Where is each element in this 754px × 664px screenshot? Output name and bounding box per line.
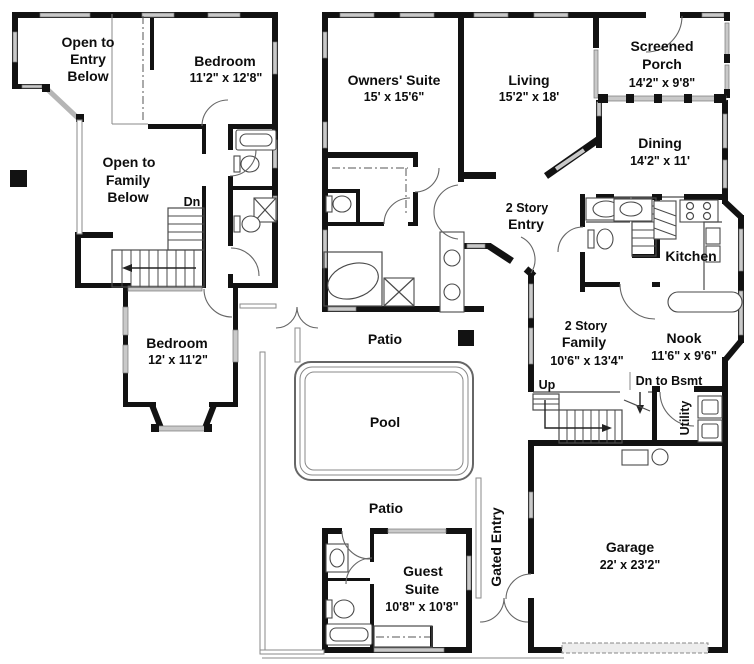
room-label-bedroom-lower: Bedroom [146,335,207,351]
washer-icon [698,396,722,418]
main-floor: Owners' Suite 15' x 15'6" Living 15'2" x… [240,12,744,658]
bathtub-icon [323,257,383,305]
room-label-bedroom-upper: Bedroom [194,53,255,69]
room-dims-family: 10'6" x 13'4" [550,354,623,368]
floor-plan-image: Open to Entry Below Bedroom 11'2" x 12'8… [0,0,754,664]
dryer-icon [698,420,722,442]
room-dims-owners-suite: 15' x 15'6" [364,90,425,104]
room-label-dining: Dining [638,135,682,151]
utility-fixtures [698,396,722,442]
stairs-up-icon [533,392,652,443]
toilet-icon [588,229,613,249]
garage-door-icon [562,643,708,653]
room-dims-living: 15'2" x 18' [499,90,560,104]
stairs-up-label: Up [539,378,556,392]
room-dims-nook: 11'6" x 9'6" [651,349,717,363]
stairs-down-icon [112,208,204,287]
room-label-open-family: Open to [103,154,156,170]
upper-floor: Open to Entry Below Bedroom 11'2" x 12'8… [10,12,278,432]
room-label-screened-porch: Porch [642,56,682,72]
basement-label: Dn to Bsmt [636,374,704,388]
gate-icon [504,598,528,622]
bathtub-icon [326,624,372,645]
gated-entry-label: Gated Entry [488,507,504,587]
pool-label: Pool [370,414,400,430]
room-label-garage: Garage [606,539,654,555]
room-label-family: 2 Story [565,319,607,333]
toilet-icon [326,600,354,618]
room-label-kitchen: Kitchen [665,248,716,264]
room-label-open-entry: Below [67,68,108,84]
double-vanity-icon [440,232,464,312]
room-label-open-family: Below [107,189,148,205]
room-dims-screened-porch: 14'2" x 9'8" [629,76,696,90]
room-label-guest-suite: Suite [405,581,439,597]
patio-upper-label: Patio [368,331,402,347]
room-label-guest-suite: Guest [403,563,443,579]
column-marker [458,330,474,346]
room-label-open-entry: Open to [62,34,115,50]
sink-icon [706,228,720,244]
water-heater-icon [652,449,668,465]
room-label-open-entry: Entry [70,51,106,67]
room-label-entry: Entry [508,216,544,232]
room-label-screened-porch: Screened [630,38,693,54]
room-dims-bedroom-lower: 12' x 11'2" [148,353,208,367]
toilet-icon [326,196,351,212]
railing-open-below [77,120,82,234]
floor-plan-page: Open to Entry Below Bedroom 11'2" x 12'8… [0,0,754,664]
range-icon [680,200,718,222]
stairs-dn-label: Dn [184,195,201,209]
room-label-living: Living [508,72,549,88]
room-dims-garage: 22' x 23'2" [600,558,661,572]
toilet-icon [234,216,260,232]
room-label-nook: Nook [667,330,702,346]
fridge-icon [654,201,676,239]
room-dims-bedroom-upper: 11'2" x 12'8" [190,71,263,85]
room-label-family: Family [562,334,607,350]
kitchen-sink-icon [620,202,642,216]
furnace-icon [622,450,648,465]
room-dims-guest-suite: 10'8" x 10'8" [385,600,458,614]
patio-lower-label: Patio [369,500,403,516]
sink-icon [330,549,344,567]
room-label-open-family: Family [106,172,151,188]
room-dims-dining: 14'2" x 11' [630,154,690,168]
gate-icon [480,598,504,622]
bar-counter [668,292,742,312]
shower-icon [384,278,414,306]
room-label-owners-suite: Owners' Suite [348,72,441,88]
bathtub-icon [236,130,276,150]
column-marker [10,170,27,187]
utility-label: Utility [678,401,692,436]
room-label-entry: 2 Story [506,201,548,215]
